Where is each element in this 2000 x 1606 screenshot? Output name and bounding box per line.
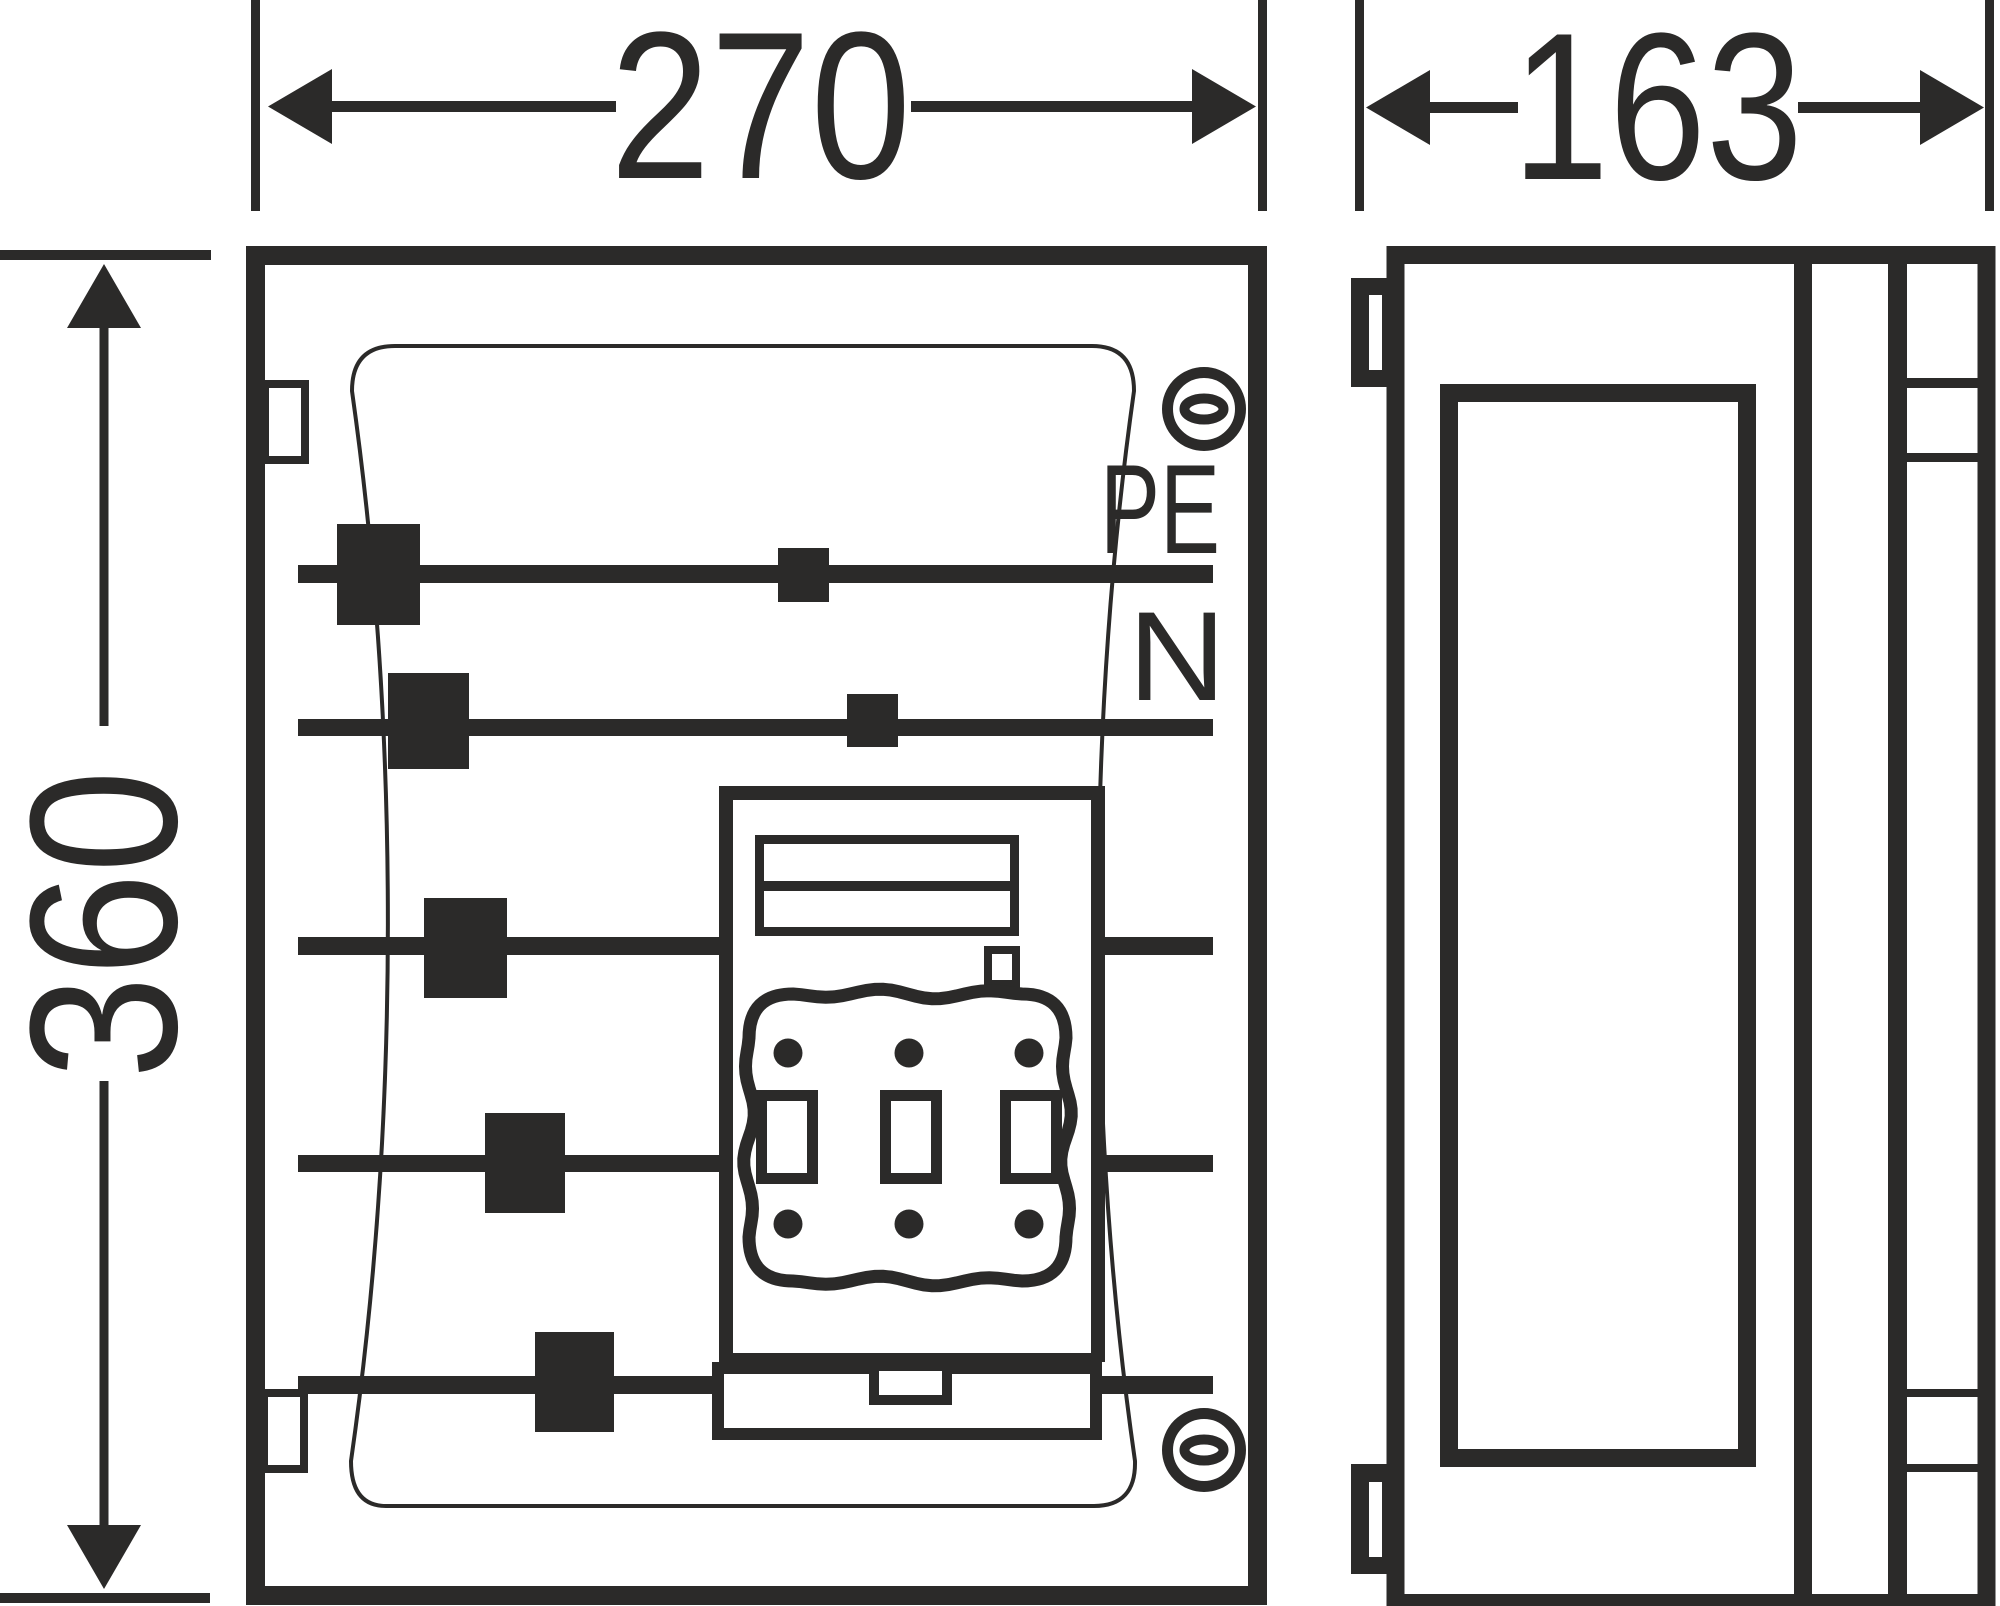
svg-text:163: 163	[1512, 0, 1803, 224]
svg-text:270: 270	[610, 0, 911, 223]
svg-text:360: 360	[0, 770, 221, 1079]
svg-text:N: N	[1128, 585, 1226, 727]
svg-text:PE: PE	[1100, 438, 1220, 580]
